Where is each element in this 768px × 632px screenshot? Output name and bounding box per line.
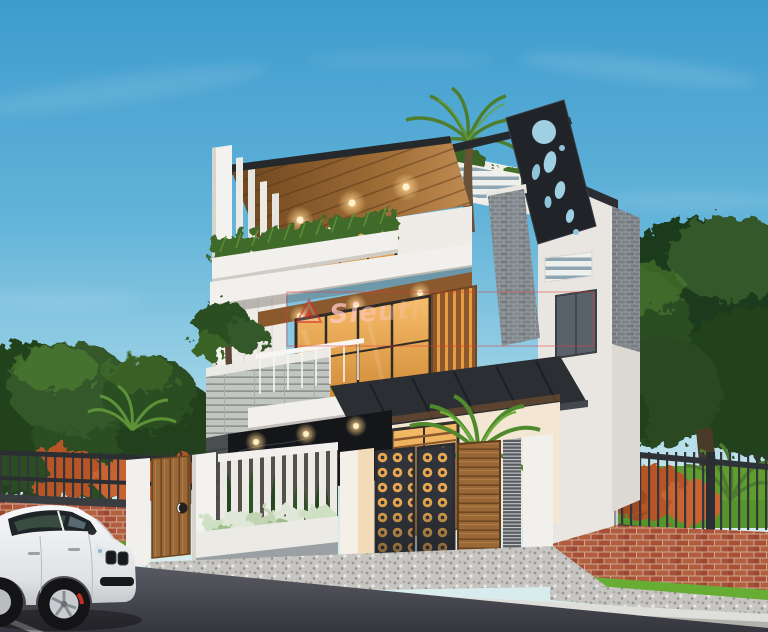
right-wing-window xyxy=(556,290,596,358)
rendered-villa-image: Sieuth xyxy=(0,0,768,632)
fence-pillar-3 xyxy=(523,434,553,552)
gate-louver-panel xyxy=(503,438,521,554)
watermark-text: Sieuth xyxy=(329,295,431,330)
pedestrian-door xyxy=(152,456,190,558)
gate-lattice-panels xyxy=(376,444,454,566)
door-handle xyxy=(177,503,188,514)
fence-pillar-2 xyxy=(340,448,374,564)
car-lower-intake xyxy=(100,577,134,586)
car-front-wheel xyxy=(38,578,90,630)
gate-wood-panel xyxy=(458,441,500,560)
